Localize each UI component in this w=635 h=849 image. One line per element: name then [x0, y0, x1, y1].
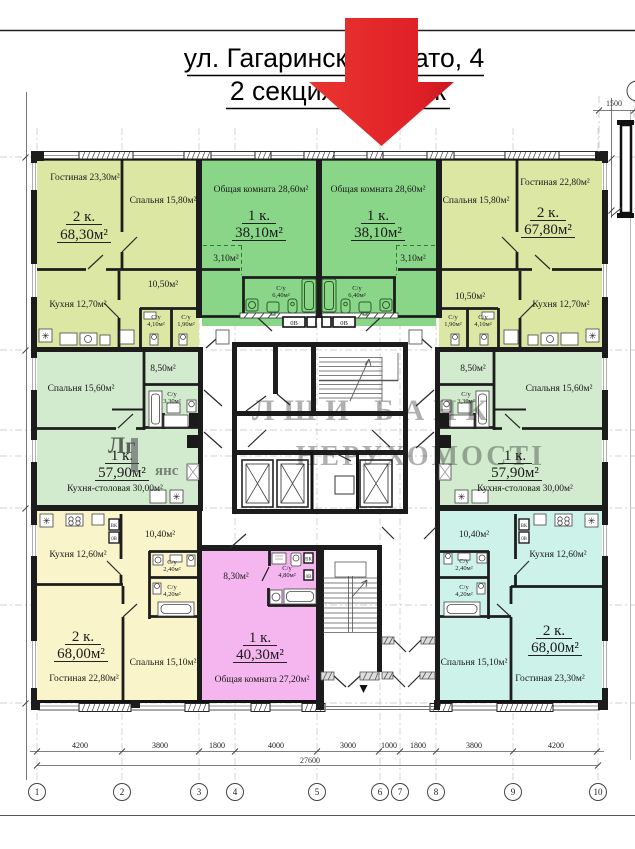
svg-text:4: 4 [233, 787, 238, 797]
svg-text:ул. Гагаринское плато, 4: ул. Гагаринское плато, 4 [184, 43, 484, 73]
svg-text:1800: 1800 [410, 741, 426, 750]
svg-text:4200: 4200 [72, 741, 88, 750]
svg-text:Гостиная 22,80м²: Гостиная 22,80м² [520, 178, 590, 188]
svg-text:✳: ✳ [588, 516, 596, 526]
svg-text:С/у: С/у [352, 285, 362, 292]
svg-text:5: 5 [315, 787, 320, 797]
svg-text:3800: 3800 [152, 741, 168, 750]
svg-text:1: 1 [35, 787, 40, 797]
svg-text:Кухня 12,70м²: Кухня 12,70м² [49, 300, 106, 310]
svg-text:Спальня 15,60м²: Спальня 15,60м² [526, 384, 593, 394]
svg-text:7: 7 [398, 787, 403, 797]
svg-text:2 к.: 2 к. [72, 629, 94, 645]
svg-text:Кухня 12,60м²: Кухня 12,60м² [49, 550, 106, 560]
svg-text:Кухня-столовая 30,00м²: Кухня-столовая 30,00м² [67, 484, 163, 494]
svg-text:Спальня 15,80м²: Спальня 15,80м² [130, 196, 197, 206]
svg-text:2,40м²: 2,40м² [163, 566, 180, 573]
svg-text:Гостиная 23,30м²: Гостиная 23,30м² [515, 674, 585, 684]
svg-text:1 к.: 1 к. [248, 208, 270, 224]
svg-text:ЛШИ БАНК: ЛШИ БАНК [252, 394, 496, 427]
svg-text:ВК: ВК [521, 524, 528, 529]
svg-text:Гостиная 22,80м²: Гостиная 22,80м² [49, 674, 119, 684]
svg-text:1,90м²: 1,90м² [444, 321, 461, 328]
svg-text:4000: 4000 [268, 741, 284, 750]
svg-text:3000: 3000 [340, 741, 356, 750]
svg-text:10,40м²: 10,40м² [145, 530, 175, 540]
svg-text:С/у: С/у [282, 565, 292, 572]
svg-text:НЕРУХОМОСТІ: НЕРУХОМОСТІ [296, 441, 545, 472]
svg-text:3800: 3800 [466, 741, 482, 750]
svg-text:68,00м²: 68,00м² [531, 640, 579, 656]
svg-text:Спальня 15,80м²: Спальня 15,80м² [443, 196, 510, 206]
svg-text:0В: 0В [340, 320, 348, 327]
svg-text:8: 8 [434, 787, 439, 797]
svg-text:С/у: С/у [167, 391, 177, 398]
svg-text:2: 2 [120, 787, 125, 797]
svg-text:Спальня 15,10м²: Спальня 15,10м² [130, 658, 197, 668]
svg-text:4,10м²: 4,10м² [147, 321, 164, 328]
svg-text:С/у: С/у [151, 314, 161, 321]
svg-text:9: 9 [511, 787, 516, 797]
svg-text:1000: 1000 [381, 741, 397, 750]
svg-text:0В: 0В [306, 575, 313, 580]
svg-text:10,50м²: 10,50м² [455, 292, 485, 302]
svg-text:ВК: ВК [111, 524, 118, 529]
svg-text:67,80м²: 67,80м² [524, 222, 572, 238]
svg-text:✳: ✳ [43, 516, 51, 526]
svg-text:С/у: С/у [478, 314, 488, 321]
svg-text:2 к.: 2 к. [537, 205, 559, 221]
svg-text:Спальня 15,60м²: Спальня 15,60м² [48, 384, 115, 394]
svg-text:2,40м²: 2,40м² [455, 565, 472, 572]
svg-text:1 к.: 1 к. [249, 630, 271, 646]
svg-text:6,40м²: 6,40м² [348, 292, 365, 299]
svg-text:2 к.: 2 к. [73, 209, 95, 225]
svg-text:3: 3 [197, 787, 202, 797]
svg-text:✳: ✳ [589, 331, 597, 341]
svg-text:С/у: С/у [459, 558, 469, 565]
svg-text:✳: ✳ [173, 492, 181, 502]
svg-text:0В: 0В [111, 537, 117, 542]
svg-text:4,20м²: 4,20м² [163, 591, 180, 598]
svg-text:1800: 1800 [209, 741, 225, 750]
svg-text:4,80м²: 4,80м² [278, 572, 295, 579]
svg-text:Кухня-столовая 30,00м²: Кухня-столовая 30,00м² [477, 484, 573, 494]
svg-text:68,00м²: 68,00м² [57, 646, 105, 662]
svg-text:С/у: С/у [276, 285, 286, 292]
svg-text:38,10м²: 38,10м² [354, 225, 402, 241]
svg-text:Гостиная 23,30м²: Гостиная 23,30м² [50, 173, 120, 183]
svg-text:10,50м²: 10,50м² [148, 280, 178, 290]
svg-text:янс: янс [155, 463, 179, 479]
svg-text:10,40м²: 10,40м² [459, 530, 489, 540]
svg-text:4200: 4200 [548, 741, 564, 750]
svg-text:3,10м²: 3,10м² [213, 254, 239, 264]
svg-text:Общая комната 27,20м²: Общая комната 27,20м² [215, 674, 310, 685]
svg-text:1,90м²: 1,90м² [177, 321, 194, 328]
svg-text:57,90м²: 57,90м² [98, 465, 146, 481]
svg-text:С/у: С/у [167, 584, 177, 591]
svg-text:8,30м²: 8,30м² [223, 572, 249, 582]
svg-text:С/у: С/у [167, 559, 177, 566]
svg-text:0В: 0В [290, 320, 298, 327]
svg-text:40,30м²: 40,30м² [236, 647, 284, 663]
svg-text:Кухня 12,70м²: Кухня 12,70м² [532, 300, 589, 310]
svg-text:8,50м²: 8,50м² [150, 364, 176, 374]
svg-text:Общая комната 28,60м²: Общая комната 28,60м² [214, 184, 309, 195]
svg-text:С/у: С/у [459, 584, 469, 591]
svg-text:С/у: С/у [448, 314, 458, 321]
svg-text:10: 10 [594, 787, 604, 797]
svg-text:✳: ✳ [458, 492, 466, 502]
svg-text:4,10м²: 4,10м² [474, 321, 491, 328]
svg-text:Спальня 15,10м²: Спальня 15,10м² [441, 658, 508, 668]
svg-text:Кухня 12,60м²: Кухня 12,60м² [529, 550, 586, 560]
svg-text:1500: 1500 [606, 99, 622, 108]
svg-text:8,50м²: 8,50м² [460, 364, 486, 374]
svg-text:27600: 27600 [300, 756, 320, 765]
svg-text:68,30м²: 68,30м² [60, 227, 108, 243]
svg-text:С/у: С/у [181, 314, 191, 321]
svg-text:3,30м²: 3,30м² [163, 398, 180, 405]
svg-text:1 к.: 1 к. [367, 208, 389, 224]
svg-text:3,10м²: 3,10м² [400, 254, 426, 264]
svg-text:6,40м²: 6,40м² [272, 292, 289, 299]
svg-text:4,20м²: 4,20м² [455, 591, 472, 598]
svg-text:2 к.: 2 к. [543, 623, 565, 639]
svg-text:✳: ✳ [42, 331, 50, 341]
svg-text:Общая комната 28,60м²: Общая комната 28,60м² [331, 184, 426, 195]
svg-text:ВК: ВК [305, 558, 312, 563]
svg-text:38,10м²: 38,10м² [235, 225, 283, 241]
svg-text:6: 6 [378, 787, 383, 797]
svg-text:0В: 0В [521, 537, 527, 542]
